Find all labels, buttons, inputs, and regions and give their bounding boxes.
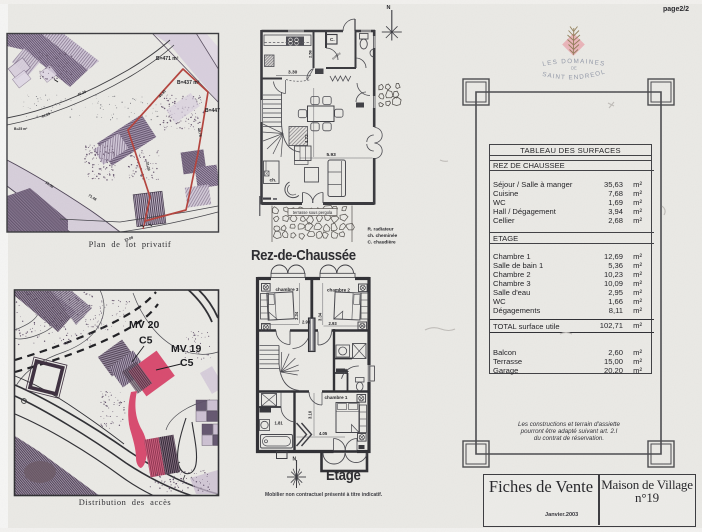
svg-text:chambre 1: chambre 1 — [325, 395, 348, 400]
svg-text:chambre 3: chambre 3 — [276, 287, 299, 292]
svg-text:31.09: 31.09 — [145, 161, 151, 171]
svg-text:C.: C. — [330, 37, 335, 42]
svg-text:ch.: ch. — [270, 178, 277, 184]
svg-text:B=25 m²: B=25 m² — [14, 127, 28, 131]
svg-text:terrasse sous pergola: terrasse sous pergola — [293, 210, 333, 215]
svg-text:2.93: 2.93 — [329, 321, 338, 326]
svg-text:4.72: 4.72 — [304, 134, 309, 143]
svg-text:44.93: 44.93 — [158, 89, 167, 98]
svg-text:46.29: 46.29 — [77, 90, 87, 97]
svg-text:C5: C5 — [180, 357, 194, 369]
svg-text:DE: DE — [571, 66, 577, 71]
svg-text:71.48: 71.48 — [87, 193, 97, 201]
svg-text:B=437 m²: B=437 m² — [177, 80, 200, 86]
svg-text:2.58: 2.58 — [308, 49, 313, 58]
svg-text:44.29: 44.29 — [41, 112, 51, 119]
svg-text:C. chaudière: C. chaudière — [368, 240, 397, 245]
svg-text:29.78: 29.78 — [197, 128, 202, 137]
svg-text:N: N — [293, 457, 297, 463]
svg-text:2.93: 2.93 — [302, 320, 311, 325]
svg-text:3.10: 3.10 — [307, 410, 312, 419]
svg-text:chambre 2: chambre 2 — [327, 288, 350, 293]
svg-text:C5: C5 — [139, 335, 153, 347]
svg-text:1.81: 1.81 — [275, 421, 284, 426]
svg-text:entrée: entrée — [331, 51, 342, 60]
svg-text:3.34: 3.34 — [294, 311, 299, 320]
svg-text:MV 19: MV 19 — [171, 343, 202, 355]
svg-text:3.34: 3.34 — [317, 312, 322, 321]
svg-text:B=471 m²: B=471 m² — [156, 56, 179, 62]
svg-text:3.30: 3.30 — [288, 70, 298, 76]
svg-text:ch. cheminée: ch. cheminée — [368, 233, 398, 238]
svg-text:4.05: 4.05 — [319, 431, 328, 436]
svg-text:MV 20: MV 20 — [129, 319, 160, 331]
svg-text:5.93: 5.93 — [327, 152, 337, 158]
svg-text:B=447: B=447 — [205, 108, 220, 114]
svg-text:R. radiateur: R. radiateur — [368, 227, 394, 232]
